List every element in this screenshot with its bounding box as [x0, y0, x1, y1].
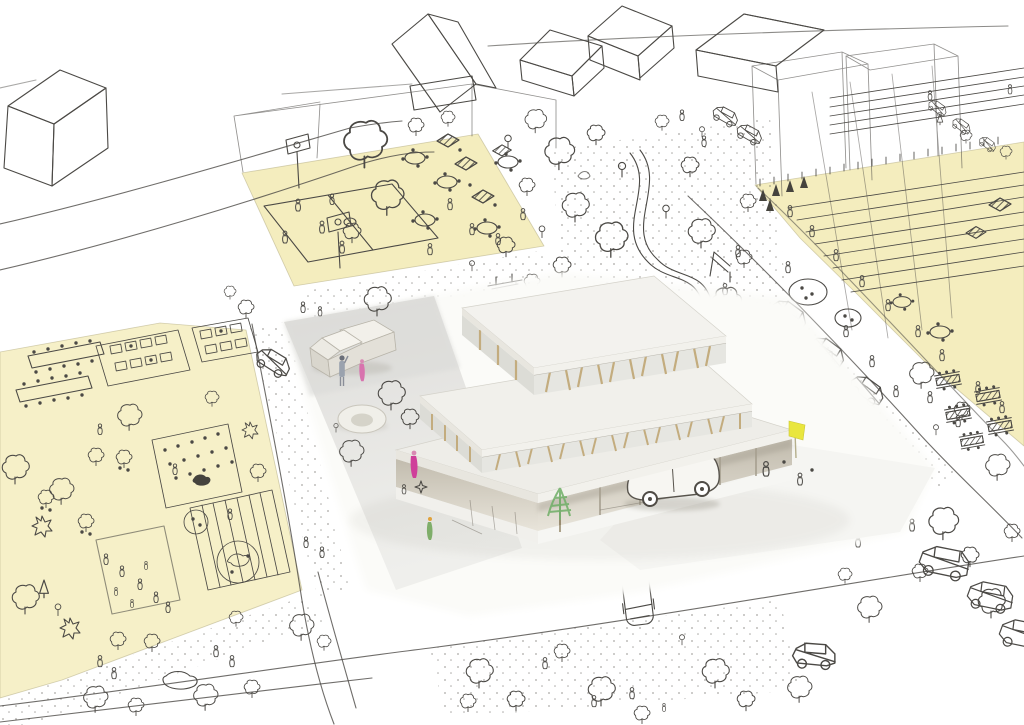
sketch-collage-canvas: [0, 0, 1024, 725]
sketch-collage-page: [0, 0, 1024, 725]
gabled-houses: [392, 6, 824, 112]
flat-roof-house: [4, 70, 108, 186]
